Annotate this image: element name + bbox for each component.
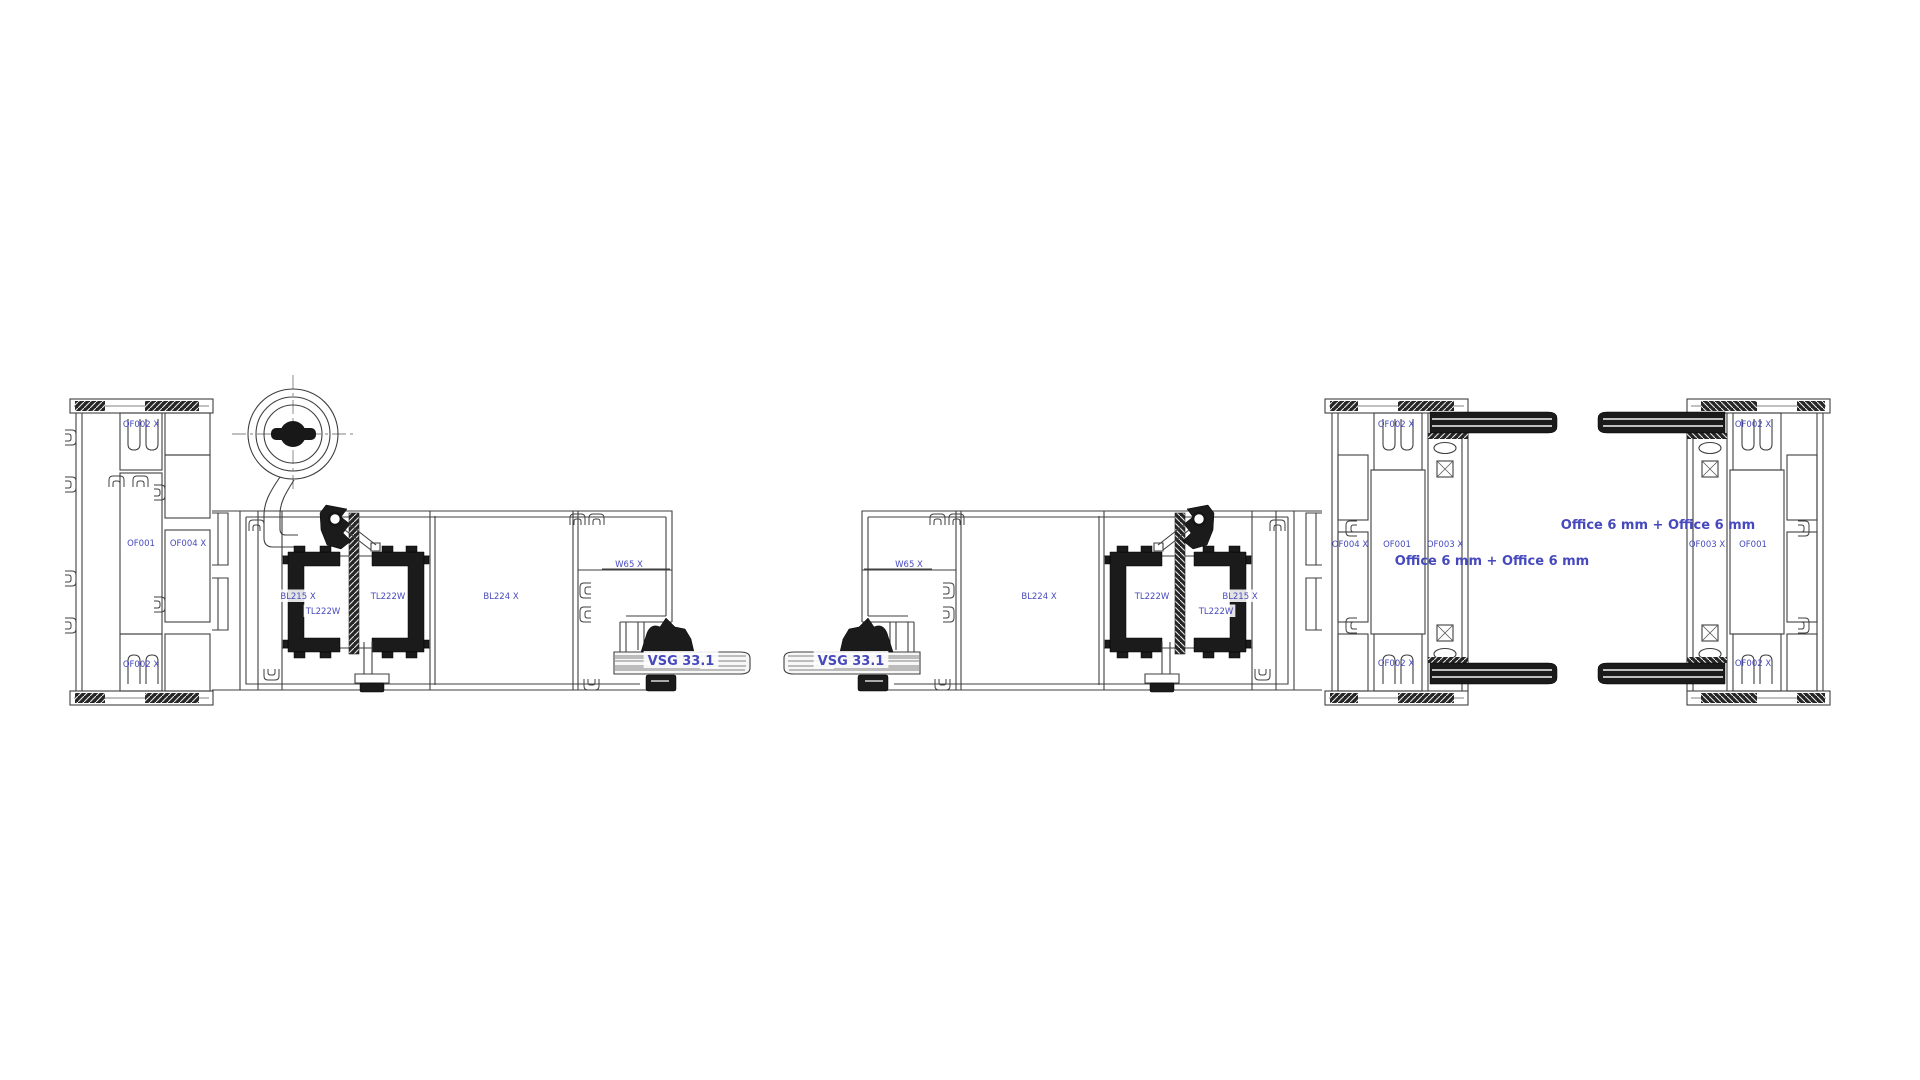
label-tl222w-left-lower: TL222W [305, 607, 341, 617]
label-of002x-frame2-bottom: OF002 X [1735, 659, 1772, 669]
label-tl222w-right-upper: TL222W [1134, 592, 1170, 602]
fixed-frame-section-left [1325, 399, 1557, 705]
label-vsg331-left: VSG 33.1 [648, 654, 715, 669]
label-bl215x-left: BL215 X [280, 592, 315, 602]
technical-drawing-canvas: OF002 XOF001OF004 XOF002 XBL215 XTL222WT… [0, 0, 1920, 1080]
label-of002x-frame1-top: OF002 X [1378, 420, 1415, 430]
label-tl222w-right-lower: TL222W [1198, 607, 1234, 617]
cad-section-drawing: OF002 XOF001OF004 XOF002 XBL215 XTL222WT… [0, 0, 1920, 1080]
label-of003x-frame2: OF003 X [1689, 540, 1726, 550]
label-of002x-jamb-bottom: OF002 X [123, 660, 160, 670]
label-of001-frame1: OF001 [1383, 540, 1411, 550]
label-of002x-frame1-bottom: OF002 X [1378, 659, 1415, 669]
label-of002x-frame2-top: OF002 X [1735, 420, 1772, 430]
label-tl222w-left-upper: TL222W [370, 592, 406, 602]
label-of001-jamb: OF001 [127, 539, 155, 549]
label-vsg331-right: VSG 33.1 [818, 654, 885, 669]
label-w65x-right: W65 X [895, 560, 923, 570]
label-of004x-frame1: OF004 X [1332, 540, 1369, 550]
label-glazing-office-1: Office 6 mm + Office 6 mm [1395, 554, 1589, 569]
label-bl215x-right: BL215 X [1222, 592, 1257, 602]
label-of002x-jamb-top: OF002 X [123, 420, 160, 430]
label-of003x-frame1: OF003 X [1427, 540, 1464, 550]
label-of004x-jamb: OF004 X [170, 539, 207, 549]
label-w65x-left: W65 X [615, 560, 643, 570]
fixed-frame-section-right [1598, 399, 1830, 705]
label-glazing-office-2: Office 6 mm + Office 6 mm [1561, 518, 1755, 533]
annotation-labels-layer: OF002 XOF001OF004 XOF002 XBL215 XTL222WT… [123, 420, 1772, 670]
label-bl224x-left: BL224 X [483, 592, 518, 602]
label-bl224x-right: BL224 X [1021, 592, 1056, 602]
roller-hub [280, 421, 306, 447]
label-of001-frame2: OF001 [1739, 540, 1767, 550]
